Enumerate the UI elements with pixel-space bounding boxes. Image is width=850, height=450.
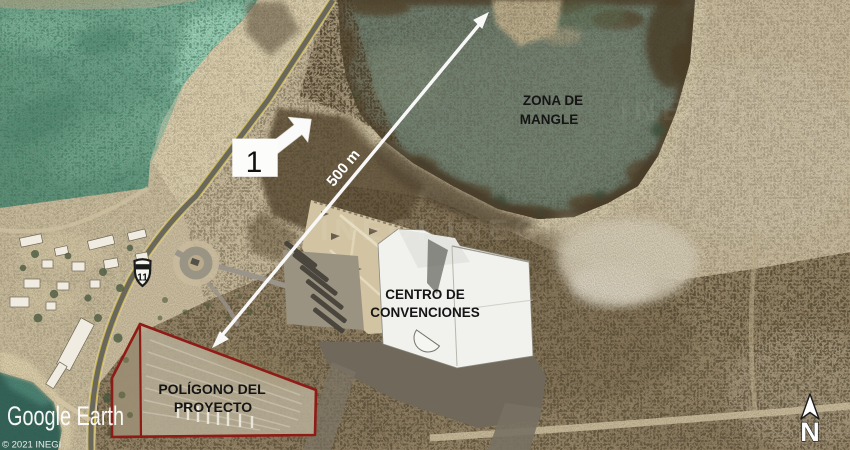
svg-text:1: 1 bbox=[246, 146, 263, 179]
svg-text:INEGI INEGI: INEGI INEGI bbox=[320, 214, 558, 247]
svg-text:CONVENCIONES: CONVENCIONES bbox=[370, 305, 480, 320]
svg-text:MANGLE: MANGLE bbox=[520, 112, 579, 127]
svg-text:INEGI: INEGI bbox=[620, 94, 732, 127]
svg-text:N: N bbox=[800, 417, 820, 447]
svg-text:© 2021 INEGI: © 2021 INEGI bbox=[2, 440, 61, 450]
svg-text:ZONA DE: ZONA DE bbox=[523, 93, 583, 108]
svg-text:CENTRO DE: CENTRO DE bbox=[385, 287, 465, 302]
svg-text:Google Earth: Google Earth bbox=[7, 401, 124, 431]
svg-text:PROYECTO: PROYECTO bbox=[174, 399, 252, 415]
svg-text:POLÍGONO DEL: POLÍGONO DEL bbox=[158, 381, 266, 397]
svg-text:11: 11 bbox=[137, 273, 148, 284]
